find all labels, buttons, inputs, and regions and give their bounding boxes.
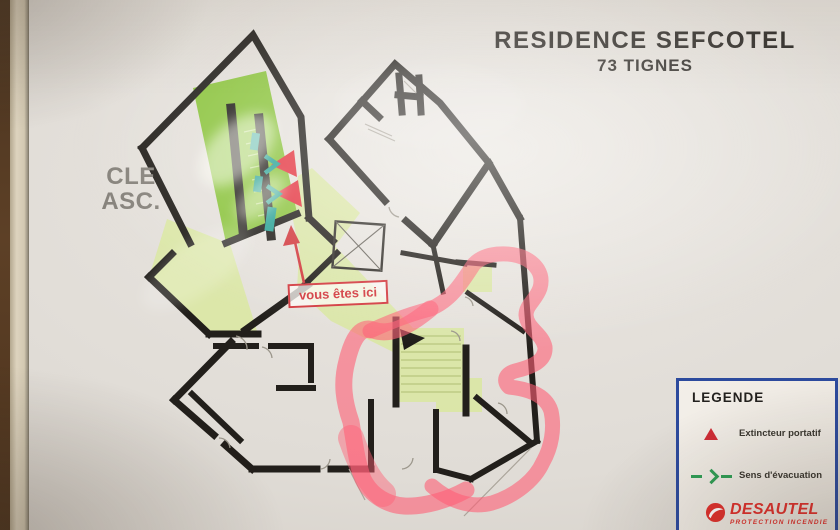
legend-item-evacuation: Sens d'évacuation bbox=[739, 470, 822, 481]
brand-text: DESAUTEL PROTECTION INCENDIE bbox=[730, 502, 828, 526]
arrow-dash bbox=[721, 475, 732, 479]
legend-item-extinguisher: Extincteur portatif bbox=[739, 428, 821, 439]
key-note-line2: ASC. bbox=[96, 190, 166, 215]
residence-location: 73 TIGNES bbox=[480, 56, 810, 76]
arrow-chevron bbox=[704, 469, 720, 485]
legend-title: LEGENDE bbox=[692, 390, 764, 405]
extinguisher-triangle-icon bbox=[704, 428, 718, 440]
brand-subtitle: PROTECTION INCENDIE bbox=[730, 519, 828, 526]
evacuation-plan-photo: RESIDENCE SEFCOTEL 73 TIGNES CLE ASC. vo… bbox=[0, 0, 840, 530]
brand-logo-icon bbox=[705, 502, 726, 523]
residence-name: RESIDENCE SEFCOTEL bbox=[480, 27, 810, 55]
brand-block: DESAUTEL PROTECTION INCENDIE bbox=[705, 502, 828, 526]
brand-name: DESAUTEL bbox=[730, 502, 828, 518]
sign-title: RESIDENCE SEFCOTEL 73 TIGNES bbox=[480, 27, 810, 76]
legend-box: LEGENDE Extincteur portatif Sens d'évacu… bbox=[676, 378, 838, 530]
evacuation-direction-icon bbox=[691, 471, 732, 482]
arrow-dash bbox=[691, 475, 702, 479]
key-note-line1: CLE bbox=[96, 165, 166, 190]
you-are-here-label: vous êtes ici bbox=[288, 280, 389, 308]
elevator-key-note: CLE ASC. bbox=[96, 165, 166, 214]
